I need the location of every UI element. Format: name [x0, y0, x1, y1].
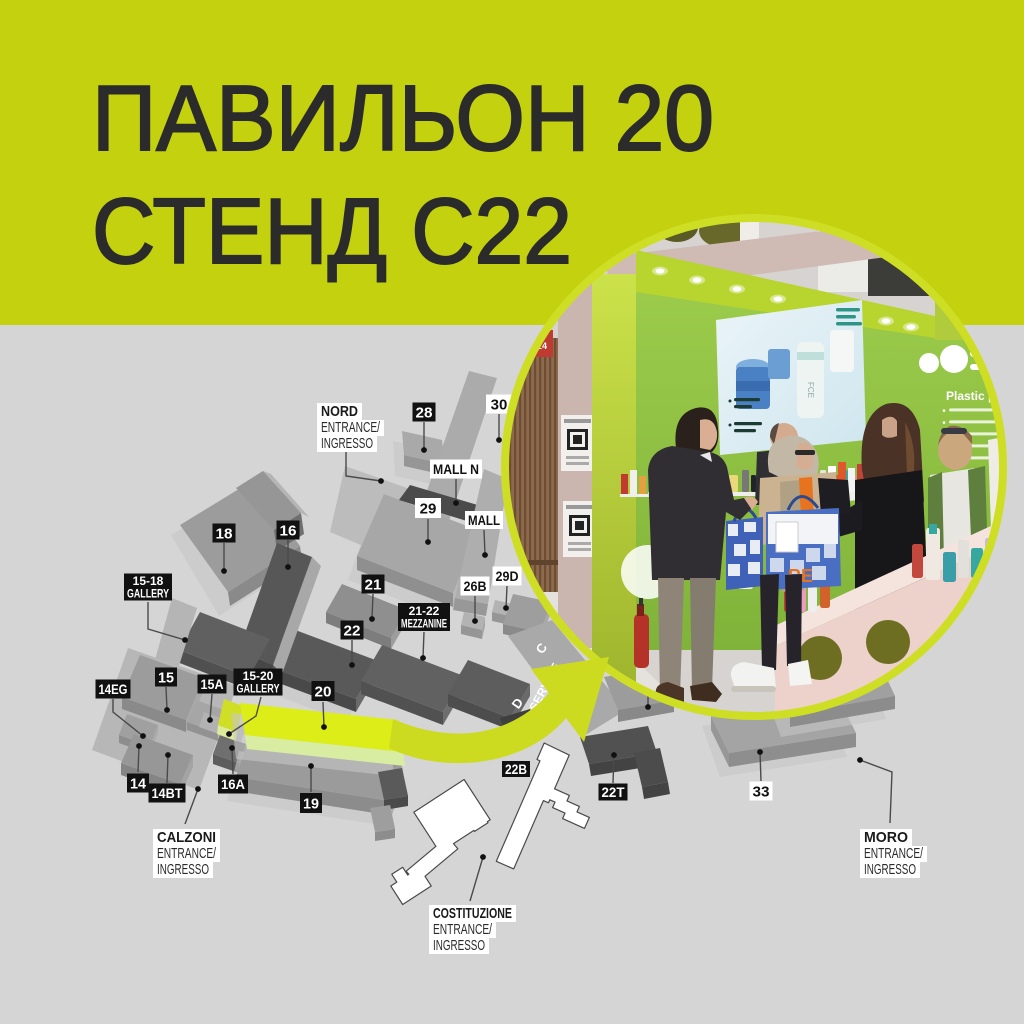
svg-text:22T: 22T: [602, 785, 626, 800]
svg-text:29: 29: [420, 500, 437, 517]
svg-text:14EG: 14EG: [99, 681, 128, 697]
svg-text:CALZONI: CALZONI: [157, 829, 216, 846]
svg-text:INGRESSO: INGRESSO: [433, 938, 485, 954]
svg-text:MALL N: MALL N: [433, 461, 479, 477]
svg-text:INGRESSO: INGRESSO: [321, 436, 373, 452]
svg-text:33: 33: [753, 783, 770, 800]
svg-text:14: 14: [130, 775, 147, 792]
svg-text:18: 18: [216, 525, 233, 542]
svg-text:21: 21: [365, 576, 382, 593]
svg-text:ENTRANCE/: ENTRANCE/: [433, 922, 493, 938]
svg-text:16A: 16A: [221, 776, 245, 792]
svg-text:INGRESSO: INGRESSO: [864, 862, 916, 878]
svg-text:MALL: MALL: [468, 512, 500, 528]
svg-text:ENTRANCE/: ENTRANCE/: [321, 420, 381, 436]
svg-text:COSTITUZIONE: COSTITUZIONE: [433, 905, 512, 922]
svg-text:29D: 29D: [496, 568, 519, 584]
svg-text:СТЕНД C22: СТЕНД C22: [92, 179, 572, 283]
svg-text:NORD: NORD: [321, 403, 358, 420]
svg-text:FCE: FCE: [806, 382, 815, 398]
svg-text:14BT: 14BT: [152, 785, 183, 801]
svg-text:16: 16: [280, 522, 297, 539]
svg-text:15A: 15A: [201, 676, 224, 692]
svg-text:MORO: MORO: [864, 829, 908, 846]
svg-text:19: 19: [303, 795, 319, 812]
svg-text:GALLERY: GALLERY: [237, 682, 280, 696]
svg-text:GALLERY: GALLERY: [127, 587, 169, 601]
svg-text:INGRESSO: INGRESSO: [157, 862, 209, 878]
svg-text:26B: 26B: [464, 578, 487, 594]
svg-text:20: 20: [315, 683, 332, 700]
svg-text:30: 30: [491, 396, 508, 413]
svg-text:MEZZANINE: MEZZANINE: [401, 617, 447, 631]
svg-text:22: 22: [344, 622, 361, 639]
svg-text:ПАВИЛЬОН 20: ПАВИЛЬОН 20: [92, 66, 714, 170]
svg-text:28: 28: [416, 404, 433, 421]
svg-text:22B: 22B: [505, 762, 527, 777]
svg-text:15: 15: [158, 669, 174, 686]
svg-text:ENTRANCE/: ENTRANCE/: [157, 846, 217, 862]
svg-text:ENTRANCE/: ENTRANCE/: [864, 846, 924, 862]
